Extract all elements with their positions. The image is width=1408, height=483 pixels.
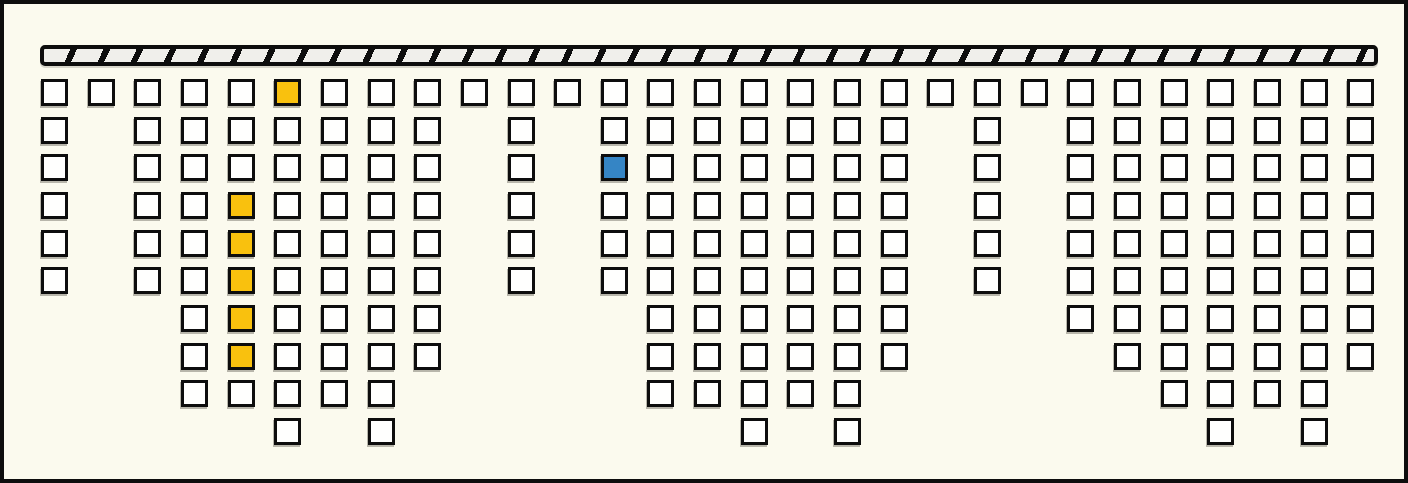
grid-cell[interactable]: [368, 154, 395, 181]
grid-cell[interactable]: [181, 343, 208, 370]
grid-cell[interactable]: [881, 79, 908, 106]
grid-cell[interactable]: [41, 154, 68, 181]
grid-cell[interactable]: [1067, 305, 1094, 332]
grid-cell[interactable]: [741, 305, 768, 332]
grid-cell[interactable]: [834, 418, 861, 445]
grid-cell[interactable]: [1114, 230, 1141, 257]
grid-cell[interactable]: [974, 154, 1001, 181]
grid-cell[interactable]: [1254, 117, 1281, 144]
grid-cell[interactable]: [368, 343, 395, 370]
grid-cell[interactable]: [274, 380, 301, 407]
grid-cell[interactable]: [1301, 117, 1328, 144]
grid-cell[interactable]: [647, 117, 674, 144]
grid-cell[interactable]: [41, 117, 68, 144]
grid-cell[interactable]: [1207, 267, 1234, 294]
grid-cell[interactable]: [1254, 267, 1281, 294]
grid-cell[interactable]: [1067, 192, 1094, 219]
grid-cell[interactable]: [181, 79, 208, 106]
grid-cell[interactable]: [1254, 305, 1281, 332]
grid-cell[interactable]: [881, 267, 908, 294]
grid-cell[interactable]: [228, 117, 255, 144]
grid-cell[interactable]: [321, 305, 348, 332]
grid-cell[interactable]: [1254, 230, 1281, 257]
grid-cell[interactable]: [1161, 267, 1188, 294]
yellow-highlight-cell[interactable]: [228, 267, 255, 294]
grid-cell[interactable]: [1207, 117, 1234, 144]
grid-cell[interactable]: [274, 117, 301, 144]
yellow-highlight-cell[interactable]: [274, 79, 301, 106]
grid-cell[interactable]: [1067, 230, 1094, 257]
grid-cell[interactable]: [181, 305, 208, 332]
grid-cell[interactable]: [787, 117, 814, 144]
grid-cell[interactable]: [974, 230, 1001, 257]
grid-cell[interactable]: [134, 154, 161, 181]
grid-cell[interactable]: [601, 192, 628, 219]
grid-cell[interactable]: [881, 117, 908, 144]
grid-cell[interactable]: [508, 192, 535, 219]
grid-cell[interactable]: [787, 230, 814, 257]
grid-cell[interactable]: [647, 305, 674, 332]
grid-cell[interactable]: [1301, 79, 1328, 106]
grid-cell[interactable]: [647, 230, 674, 257]
grid-cell[interactable]: [974, 79, 1001, 106]
grid-cell[interactable]: [368, 79, 395, 106]
grid-cell[interactable]: [834, 154, 861, 181]
grid-cell[interactable]: [647, 154, 674, 181]
grid-cell[interactable]: [1161, 305, 1188, 332]
diagram-frame: [0, 0, 1408, 483]
grid-cell[interactable]: [181, 380, 208, 407]
grid-cell[interactable]: [881, 343, 908, 370]
grid-cell[interactable]: [181, 267, 208, 294]
grid-cell[interactable]: [1161, 154, 1188, 181]
grid-cell[interactable]: [1207, 305, 1234, 332]
grid-cell[interactable]: [974, 192, 1001, 219]
grid-cell[interactable]: [508, 230, 535, 257]
grid-cell[interactable]: [694, 117, 721, 144]
grid-cell[interactable]: [1161, 230, 1188, 257]
grid-cell[interactable]: [787, 380, 814, 407]
grid-cell[interactable]: [694, 154, 721, 181]
grid-cell[interactable]: [974, 267, 1001, 294]
grid-cell[interactable]: [1347, 343, 1374, 370]
grid-cell[interactable]: [274, 192, 301, 219]
grid-cell[interactable]: [647, 79, 674, 106]
grid-cell[interactable]: [1114, 267, 1141, 294]
grid-cell[interactable]: [741, 79, 768, 106]
grid-cell[interactable]: [647, 380, 674, 407]
grid-cell[interactable]: [414, 79, 441, 106]
grid-cell[interactable]: [694, 230, 721, 257]
grid-cell[interactable]: [601, 117, 628, 144]
blue-highlight-cell[interactable]: [601, 154, 628, 181]
grid-cell[interactable]: [321, 380, 348, 407]
grid-cell[interactable]: [741, 343, 768, 370]
grid-cell[interactable]: [741, 117, 768, 144]
grid-cell[interactable]: [741, 267, 768, 294]
grid-cell[interactable]: [368, 267, 395, 294]
grid-cell[interactable]: [834, 305, 861, 332]
grid-cell[interactable]: [321, 154, 348, 181]
grid-cell[interactable]: [1347, 305, 1374, 332]
grid-cell[interactable]: [41, 192, 68, 219]
grid-cell[interactable]: [1347, 192, 1374, 219]
grid-cell[interactable]: [134, 230, 161, 257]
grid-cell[interactable]: [1067, 117, 1094, 144]
grid-cell[interactable]: [1067, 154, 1094, 181]
grid-cell[interactable]: [1301, 192, 1328, 219]
grid-cell[interactable]: [228, 79, 255, 106]
grid-cell[interactable]: [741, 380, 768, 407]
grid-cell[interactable]: [414, 154, 441, 181]
grid-cell[interactable]: [1114, 79, 1141, 106]
grid-cell[interactable]: [694, 305, 721, 332]
grid-cell[interactable]: [181, 230, 208, 257]
grid-cell[interactable]: [368, 192, 395, 219]
grid-cell[interactable]: [1254, 343, 1281, 370]
grid-cell[interactable]: [1207, 79, 1234, 106]
grid-cell[interactable]: [1114, 305, 1141, 332]
grid-cell[interactable]: [1301, 305, 1328, 332]
grid-cell[interactable]: [1254, 79, 1281, 106]
grid-cell[interactable]: [274, 267, 301, 294]
grid-cell[interactable]: [274, 305, 301, 332]
grid-cell[interactable]: [181, 192, 208, 219]
grid-cell[interactable]: [228, 154, 255, 181]
grid-cell[interactable]: [88, 79, 115, 106]
grid-cell[interactable]: [368, 230, 395, 257]
grid-cell[interactable]: [368, 380, 395, 407]
grid-cell[interactable]: [694, 192, 721, 219]
grid-cell[interactable]: [694, 380, 721, 407]
grid-cell[interactable]: [881, 305, 908, 332]
grid-cell[interactable]: [741, 192, 768, 219]
grid-cell[interactable]: [1161, 343, 1188, 370]
grid-cell[interactable]: [834, 380, 861, 407]
grid-cell[interactable]: [41, 79, 68, 106]
grid-cell[interactable]: [601, 230, 628, 257]
grid-cell[interactable]: [134, 79, 161, 106]
grid-cell[interactable]: [554, 79, 581, 106]
grid-cell[interactable]: [1067, 267, 1094, 294]
grid-cell[interactable]: [974, 117, 1001, 144]
grid-cell[interactable]: [1207, 154, 1234, 181]
grid-cell[interactable]: [694, 267, 721, 294]
grid-cell[interactable]: [647, 192, 674, 219]
grid-cell[interactable]: [414, 117, 441, 144]
grid-cell[interactable]: [181, 154, 208, 181]
grid-cell[interactable]: [834, 230, 861, 257]
grid-cell[interactable]: [508, 267, 535, 294]
grid-cell[interactable]: [787, 192, 814, 219]
grid-cell[interactable]: [1161, 380, 1188, 407]
grid-cell[interactable]: [134, 192, 161, 219]
grid-cell[interactable]: [834, 343, 861, 370]
grid-cell[interactable]: [1067, 79, 1094, 106]
grid-cell[interactable]: [1301, 418, 1328, 445]
grid-cell[interactable]: [368, 117, 395, 144]
grid-cell[interactable]: [414, 230, 441, 257]
grid-cell[interactable]: [368, 305, 395, 332]
grid-cell[interactable]: [881, 230, 908, 257]
grid-cell[interactable]: [1254, 380, 1281, 407]
yellow-highlight-cell[interactable]: [228, 192, 255, 219]
grid-cell[interactable]: [741, 418, 768, 445]
grid-cell[interactable]: [1021, 79, 1048, 106]
grid-cell[interactable]: [1114, 192, 1141, 219]
grid-cell[interactable]: [1347, 117, 1374, 144]
grid-cell[interactable]: [1301, 380, 1328, 407]
grid-cell[interactable]: [508, 154, 535, 181]
grid-cell[interactable]: [834, 267, 861, 294]
grid-cell[interactable]: [787, 154, 814, 181]
grid-cell[interactable]: [741, 230, 768, 257]
grid-cell[interactable]: [1114, 117, 1141, 144]
grid-cell[interactable]: [741, 154, 768, 181]
grid-cell[interactable]: [1301, 267, 1328, 294]
grid-cell[interactable]: [1347, 154, 1374, 181]
grid-cell[interactable]: [601, 267, 628, 294]
grid-cell[interactable]: [134, 117, 161, 144]
grid-cell[interactable]: [1114, 154, 1141, 181]
grid-cell[interactable]: [41, 267, 68, 294]
grid-cell[interactable]: [274, 418, 301, 445]
grid-cell[interactable]: [1207, 380, 1234, 407]
grid-cell[interactable]: [834, 117, 861, 144]
ceiling-hatched-bar[interactable]: [40, 45, 1378, 66]
grid-cell[interactable]: [274, 343, 301, 370]
grid-cell[interactable]: [1301, 154, 1328, 181]
grid-cell[interactable]: [1207, 192, 1234, 219]
grid-cell[interactable]: [134, 267, 161, 294]
grid-cell[interactable]: [321, 117, 348, 144]
grid-cell[interactable]: [694, 79, 721, 106]
grid-cell[interactable]: [368, 418, 395, 445]
yellow-highlight-cell[interactable]: [228, 305, 255, 332]
grid-cell[interactable]: [508, 117, 535, 144]
grid-cell[interactable]: [1347, 79, 1374, 106]
grid-cell[interactable]: [1207, 418, 1234, 445]
grid-cell[interactable]: [414, 305, 441, 332]
grid-cell[interactable]: [41, 230, 68, 257]
grid-cell[interactable]: [787, 343, 814, 370]
grid-cell[interactable]: [1301, 343, 1328, 370]
grid-cell[interactable]: [321, 192, 348, 219]
grid-cell[interactable]: [1254, 154, 1281, 181]
grid-cell[interactable]: [787, 79, 814, 106]
grid-cell[interactable]: [414, 192, 441, 219]
grid-cell[interactable]: [321, 79, 348, 106]
grid-cell[interactable]: [274, 230, 301, 257]
grid-cell[interactable]: [787, 305, 814, 332]
grid-cell[interactable]: [508, 79, 535, 106]
grid-cell[interactable]: [321, 230, 348, 257]
grid-cell[interactable]: [228, 380, 255, 407]
grid-cell[interactable]: [1347, 267, 1374, 294]
grid-cell[interactable]: [461, 79, 488, 106]
grid-cell[interactable]: [414, 343, 441, 370]
grid-cell[interactable]: [1347, 230, 1374, 257]
grid-cell[interactable]: [647, 343, 674, 370]
grid-cell[interactable]: [181, 117, 208, 144]
grid-cell[interactable]: [1254, 192, 1281, 219]
grid-cell[interactable]: [881, 192, 908, 219]
grid-cell[interactable]: [927, 79, 954, 106]
grid-cell[interactable]: [321, 267, 348, 294]
grid-cell[interactable]: [834, 192, 861, 219]
grid-cell[interactable]: [834, 79, 861, 106]
grid-cell[interactable]: [1207, 343, 1234, 370]
grid-cell[interactable]: [601, 79, 628, 106]
grid-cell[interactable]: [787, 267, 814, 294]
grid-cell[interactable]: [1161, 192, 1188, 219]
yellow-highlight-cell[interactable]: [228, 230, 255, 257]
grid-cell[interactable]: [1161, 79, 1188, 106]
yellow-highlight-cell[interactable]: [228, 343, 255, 370]
grid-cell[interactable]: [694, 343, 721, 370]
grid-cell[interactable]: [414, 267, 441, 294]
grid-cell[interactable]: [881, 154, 908, 181]
grid-cell[interactable]: [1207, 230, 1234, 257]
grid-cell[interactable]: [647, 267, 674, 294]
grid-cell[interactable]: [1114, 343, 1141, 370]
grid-cell[interactable]: [1301, 230, 1328, 257]
grid-cell[interactable]: [274, 154, 301, 181]
grid-cell[interactable]: [1161, 117, 1188, 144]
grid-cell[interactable]: [321, 343, 348, 370]
